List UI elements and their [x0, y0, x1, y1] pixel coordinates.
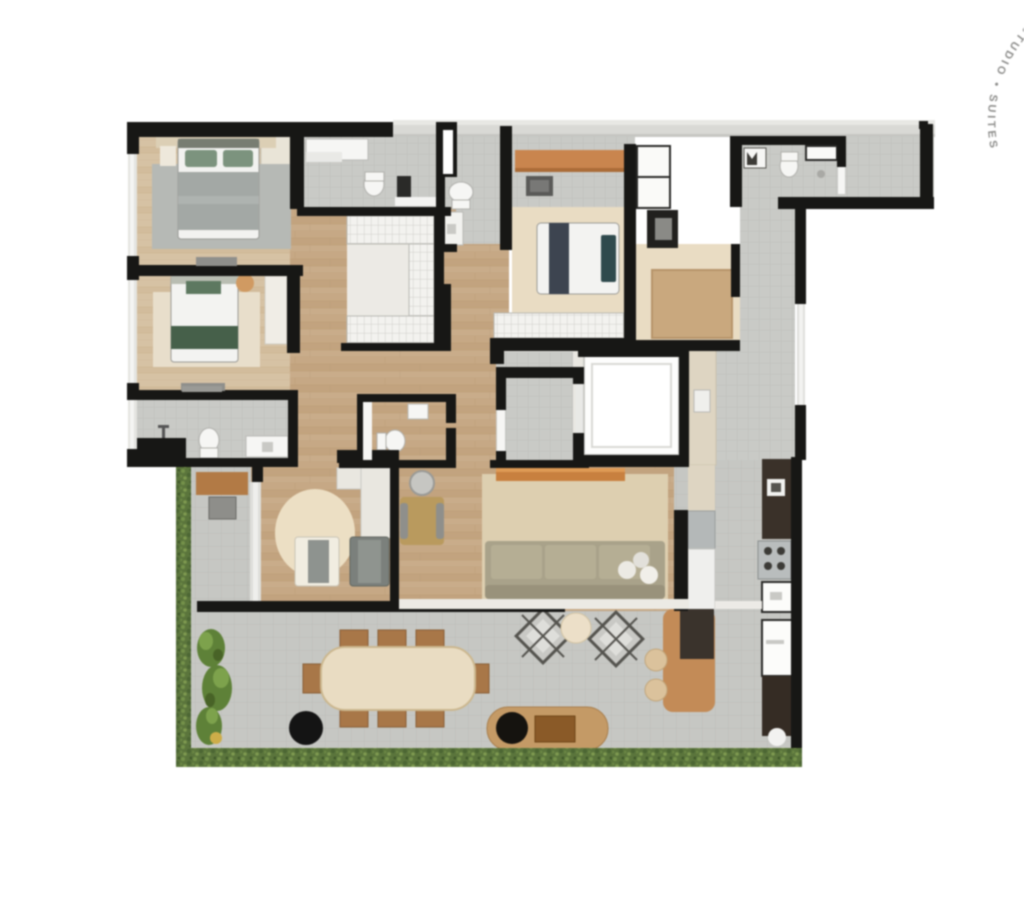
svg-text:ESTUDIO • SUITES: ESTUDIO • SUITES — [985, 16, 1024, 152]
